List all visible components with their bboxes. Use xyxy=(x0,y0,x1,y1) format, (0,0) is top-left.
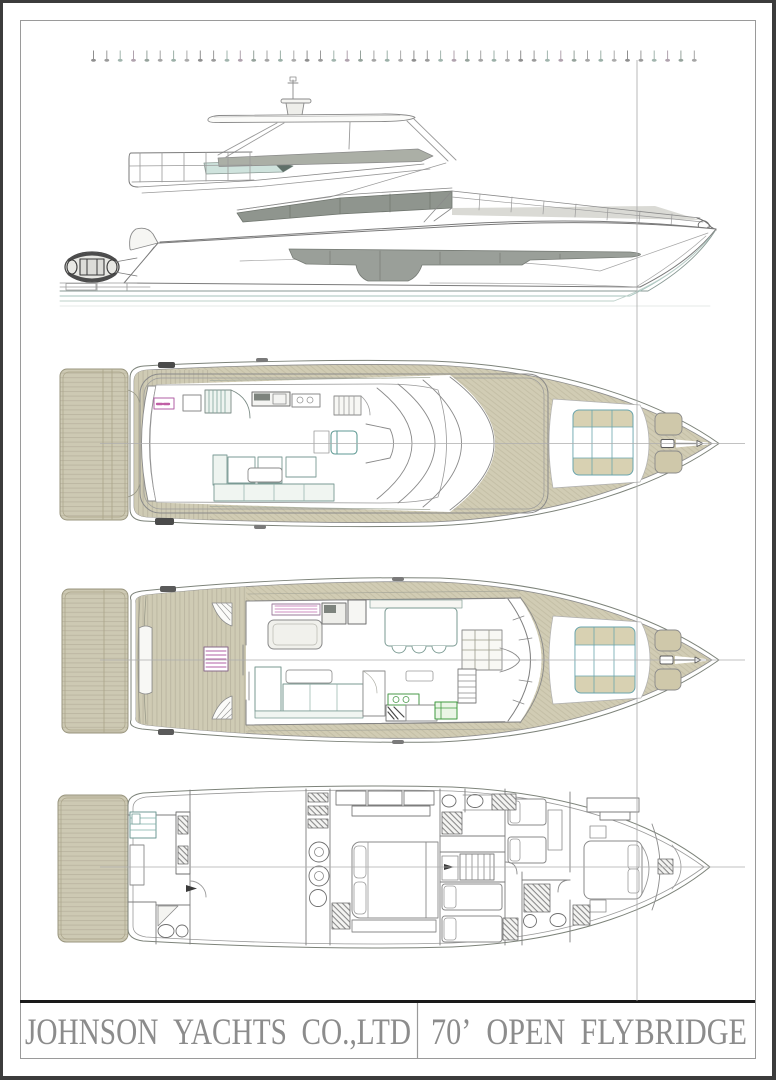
svg-text:70’ OPEN FLYBRIDGE: 70’ OPEN FLYBRIDGE xyxy=(431,1012,747,1053)
svg-text:JOHNSON YACHTS CO.,LTD: JOHNSON YACHTS CO.,LTD xyxy=(25,1012,411,1053)
